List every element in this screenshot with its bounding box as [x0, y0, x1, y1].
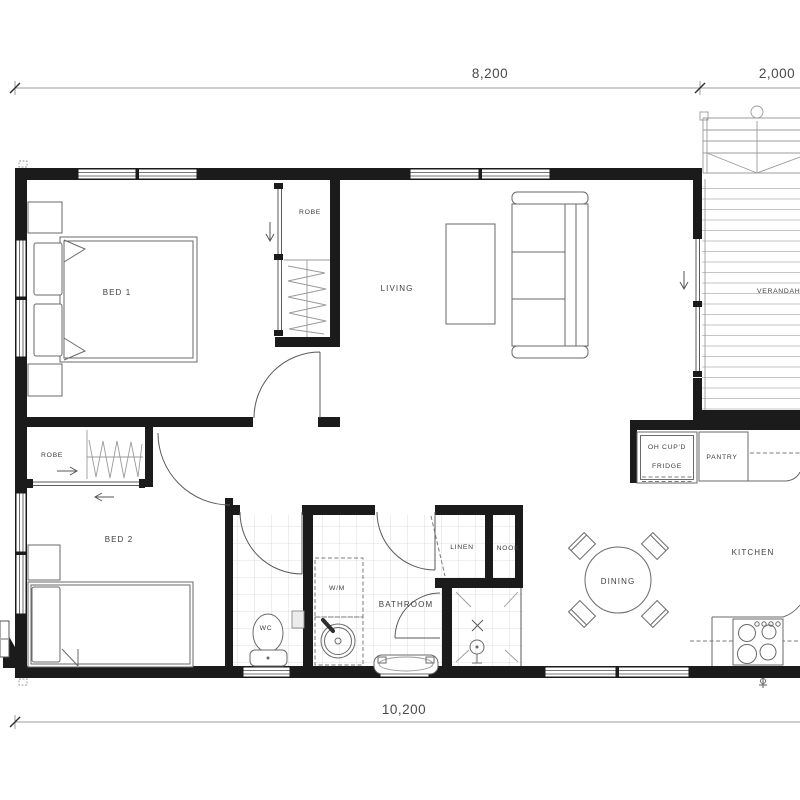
label-overhead-cupboard: OH CUP'D	[648, 444, 686, 451]
slide-direction-arrow	[95, 493, 114, 501]
floor-plan-canvas: 8,200 2,000 10,200 VERANDAH	[0, 0, 800, 800]
dimension-label-main-width: 8,200	[472, 66, 508, 81]
bedside-table	[28, 545, 60, 580]
wall-shower-top	[435, 578, 523, 588]
setout-marker	[19, 679, 27, 685]
wall-linen-divider	[485, 505, 493, 578]
room-label-kitchen: KITCHEN	[732, 548, 775, 557]
dining-chair	[642, 533, 669, 560]
outdoor-tap	[759, 678, 767, 688]
window-wc-bottom	[240, 668, 293, 677]
pillow	[32, 587, 60, 662]
window-bed2-left	[17, 490, 26, 617]
sliding-door-verandah	[680, 233, 702, 378]
wall-robe2-right	[145, 427, 153, 487]
wall-bath-top-c	[435, 505, 523, 515]
room-label-nook: NOOK	[497, 545, 520, 552]
room-label-living: LIVING	[381, 284, 414, 293]
sliding-door-robe2	[27, 467, 145, 501]
room-label-wc: WC	[260, 625, 273, 632]
room-label-bed1: BED 1	[103, 288, 132, 297]
bedside-table	[28, 202, 62, 233]
wall-fridge-stub	[630, 420, 637, 483]
pillow	[34, 243, 62, 295]
window-dining-bottom	[542, 668, 692, 677]
wc-basin	[292, 611, 304, 628]
window-bed1-left	[17, 237, 26, 360]
dining-set: DINING	[569, 533, 669, 628]
living-furniture: LIVING	[381, 192, 588, 358]
toilet-bowl	[253, 614, 283, 652]
verandah-steps	[700, 106, 800, 173]
sliding-door-robe1	[266, 183, 283, 336]
wall-bed1-bottom	[15, 417, 253, 427]
room-label-robe2: ROBE	[41, 452, 63, 459]
slide-direction-arrow	[57, 467, 77, 475]
room-label-robe1: ROBE	[299, 209, 321, 216]
dimension-bottom: 10,200	[10, 702, 800, 729]
wall-shower-left	[442, 588, 452, 668]
door-bed1	[254, 352, 320, 418]
coffee-table	[446, 224, 495, 324]
floor-plan-drawing: 8,200 2,000 10,200 VERANDAH	[0, 0, 800, 800]
sofa	[512, 192, 588, 358]
pillow	[34, 304, 62, 356]
dimension-label-verandah-width: 2,000	[759, 66, 795, 81]
setout-marker	[19, 161, 27, 167]
slide-direction-arrow	[266, 222, 274, 241]
bed1-robe: ROBE	[284, 209, 330, 337]
dimension-label-total-width: 10,200	[382, 702, 426, 717]
room-label-bed2: BED 2	[105, 535, 134, 544]
room-label-bathroom: BATHROOM	[379, 600, 433, 609]
wall-bath-top-a	[225, 505, 240, 515]
verandah-deck: VERANDAH	[702, 179, 800, 411]
deck-boards	[702, 179, 800, 411]
bed2-robe: ROBE	[41, 430, 143, 479]
wall-robe1-bottom	[275, 337, 340, 347]
wall-robe1-right	[330, 172, 340, 347]
fridge-box	[637, 432, 697, 483]
dining-chair	[569, 533, 596, 560]
wall-kitchen-top	[630, 420, 800, 430]
room-label-wm: W/M	[329, 585, 345, 592]
wall-verandah-edge	[693, 410, 800, 420]
bedside-table	[28, 364, 62, 396]
room-label-verandah: VERANDAH	[757, 288, 800, 295]
wall-bed2-right	[225, 498, 233, 678]
dimension-top: 8,200 2,000	[10, 66, 800, 95]
slide-direction-arrow	[680, 271, 688, 289]
room-label-dining: DINING	[601, 577, 636, 586]
window-bed1-top	[75, 170, 200, 179]
pantry-area: PANTRY	[699, 432, 800, 481]
cooktop	[733, 619, 783, 665]
dining-chair	[569, 601, 596, 628]
kitchen-counter-top	[748, 472, 800, 481]
step-post	[751, 106, 763, 118]
wall-nook-right	[515, 505, 523, 578]
fridge-cupboard: OH CUP'D FRIDGE	[637, 432, 697, 483]
door-bed2	[158, 433, 230, 505]
room-label-pantry: PANTRY	[706, 454, 737, 461]
steps-treads	[703, 118, 800, 173]
hanging-clothes	[89, 440, 142, 478]
wall-wc-divider	[303, 505, 313, 668]
wall-bed1-bottom-stub	[318, 417, 340, 427]
dining-chair	[642, 601, 669, 628]
label-fridge: FRIDGE	[652, 463, 682, 470]
bed1-furniture: BED 1	[28, 202, 197, 396]
window-living-top	[407, 170, 553, 179]
bed1-bed	[60, 237, 197, 362]
room-label-linen: LINEN	[450, 544, 474, 551]
bed2-furniture: BED 2	[28, 535, 193, 667]
